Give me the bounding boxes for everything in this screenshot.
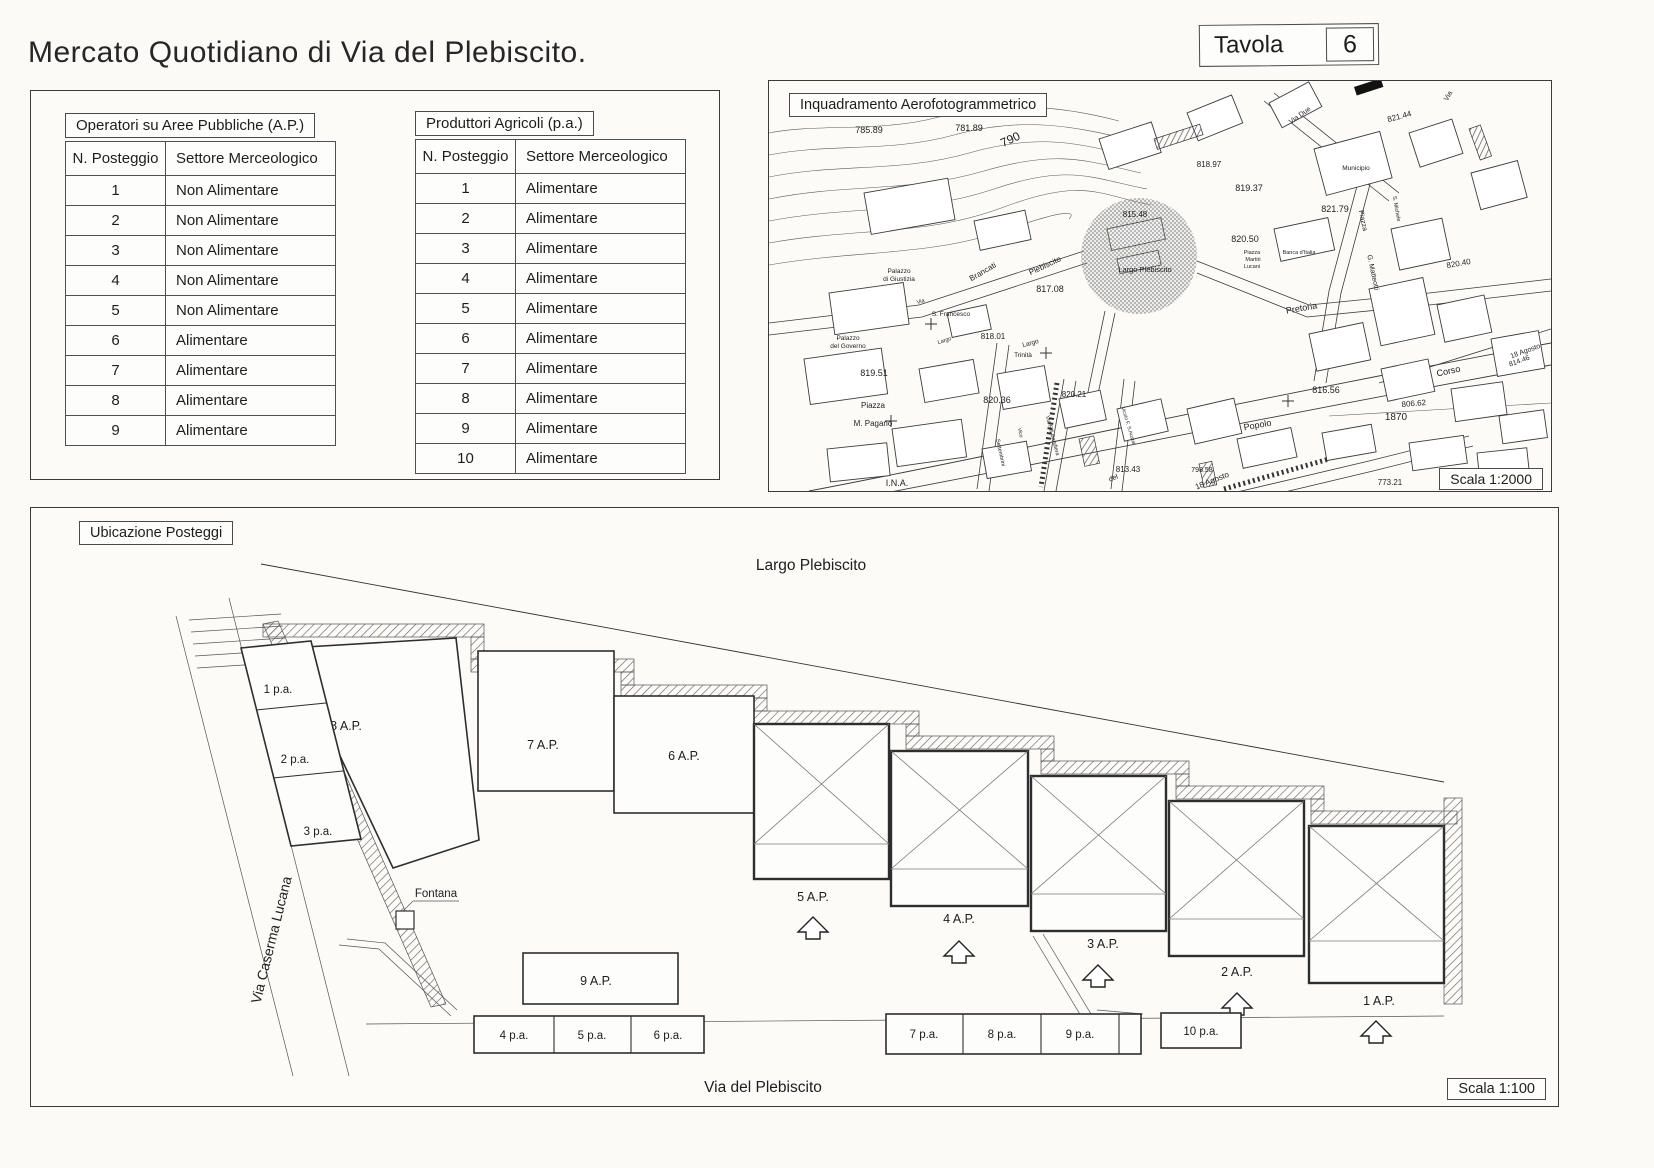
- stall-label: 2 p.a.: [281, 754, 310, 766]
- table-row: 7Alimentare: [66, 356, 336, 386]
- ap-col-settore: Settore Merceologico: [166, 142, 336, 176]
- map-label: 815.48: [1123, 210, 1148, 219]
- cell-settore: Alimentare: [516, 414, 686, 444]
- map-drawing: 785.89781.89790818.97819.37815.48820.50P…: [769, 81, 1551, 491]
- cell-posteggio: 9: [66, 416, 166, 446]
- map-label: Brancati: [968, 260, 998, 283]
- map-label: Via: [916, 298, 926, 306]
- map-label: Banca d'Italia: [1283, 250, 1317, 256]
- cell-settore: Alimentare: [516, 264, 686, 294]
- stall-label: 8 A.P.: [330, 719, 362, 733]
- table-row: 2Alimentare: [416, 204, 686, 234]
- map-label: 820.36: [983, 395, 1011, 405]
- map-label: Largo: [1022, 338, 1040, 349]
- map-scale-label: Scala 1:2000: [1439, 468, 1543, 490]
- map-label: 785.89: [855, 125, 883, 135]
- map-label: Pretoria: [1285, 300, 1318, 315]
- map-label: 820.21: [1062, 390, 1087, 399]
- street-label-largo-plebiscito: Largo Plebiscito: [756, 557, 866, 574]
- cell-posteggio: 1: [416, 174, 516, 204]
- map-label: S. Michele: [1391, 196, 1401, 222]
- ap-table-title: Operatori su Aree Pubbliche (A.P.): [65, 113, 315, 138]
- table-row: 6Alimentare: [66, 326, 336, 356]
- map-label: Lucani: [1244, 264, 1260, 270]
- stall-label: 9 A.P.: [580, 974, 612, 988]
- cell-posteggio: 3: [66, 236, 166, 266]
- map-label: Martiri: [1245, 257, 1260, 263]
- table-row: 8Alimentare: [66, 386, 336, 416]
- fountain: Fontana: [396, 888, 459, 929]
- stall-direction-arrow-icon: [1083, 965, 1113, 987]
- stall-direction-arrow-icon: [1222, 993, 1252, 1015]
- tavola-box: Tavola 6: [1199, 23, 1379, 67]
- table-row: 10Alimentare: [416, 444, 686, 474]
- map-label: del Governo: [830, 343, 866, 350]
- table-row: 3Non Alimentare: [66, 236, 336, 266]
- stall-2ap: [1169, 801, 1304, 956]
- ap-col-posteggio: N. Posteggio: [66, 142, 166, 176]
- table-row: 1Non Alimentare: [66, 176, 336, 206]
- map-label: Piazza: [861, 401, 886, 410]
- map-label: 781.89: [955, 123, 983, 133]
- map-label: 806.62: [1401, 398, 1427, 409]
- map-label: I.N.A.: [886, 478, 909, 488]
- cell-settore: Alimentare: [516, 294, 686, 324]
- pa-table-header-row: N. Posteggio Settore Merceologico: [416, 140, 686, 174]
- table-row: 4Non Alimentare: [66, 266, 336, 296]
- cell-settore: Non Alimentare: [166, 296, 336, 326]
- stall-label: 1 A.P.: [1363, 994, 1395, 1008]
- stall-label: 9 p.a.: [1066, 1029, 1095, 1041]
- map-label: Plebiscito: [1028, 254, 1063, 277]
- map-label: 818.01: [981, 332, 1006, 341]
- tavola-label: Tavola: [1200, 31, 1326, 60]
- map-label: Via: [1443, 90, 1454, 102]
- map-label: S. Francesco: [932, 311, 971, 318]
- map-label: Popolo: [1243, 418, 1272, 433]
- map-label: 817.08: [1036, 284, 1064, 294]
- tavola-number: 6: [1326, 27, 1374, 62]
- cell-posteggio: 7: [66, 356, 166, 386]
- pa-table-body: 1Alimentare2Alimentare3Alimentare4Alimen…: [416, 174, 686, 474]
- ap-table: N. Posteggio Settore Merceologico 1Non A…: [65, 141, 336, 446]
- cell-settore: Alimentare: [516, 444, 686, 474]
- cell-posteggio: 9: [416, 414, 516, 444]
- pa-col-settore: Settore Merceologico: [516, 140, 686, 174]
- plan-stalls-group: 8 A.P.7 A.P.6 A.P.9 A.P.5 A.P.4 A.P.3 A.…: [241, 638, 1444, 1054]
- stall-label: 5 p.a.: [578, 1030, 607, 1042]
- map-label: Trinità: [1014, 352, 1032, 359]
- cell-settore: Non Alimentare: [166, 266, 336, 296]
- map-label: Palazzo: [887, 268, 911, 275]
- pa-table: N. Posteggio Settore Merceologico 1Alime…: [415, 139, 686, 474]
- stall-label: 8 p.a.: [988, 1029, 1017, 1041]
- stall-label: 4 A.P.: [943, 912, 975, 926]
- plan-scale-label: Scala 1:100: [1447, 1078, 1546, 1100]
- pa-col-posteggio: N. Posteggio: [416, 140, 516, 174]
- map-label: 819.37: [1235, 183, 1263, 193]
- map-label: Piazza: [1244, 250, 1261, 256]
- cell-posteggio: 8: [416, 384, 516, 414]
- table-row: 6Alimentare: [416, 324, 686, 354]
- site-plan: Fontana 8 A.P.7 A.P.6 A.P.9 A.P.5 A.P.4 …: [30, 507, 1559, 1107]
- table-row: 1Alimentare: [416, 174, 686, 204]
- cell-posteggio: 3: [416, 234, 516, 264]
- map-inset: 785.89781.89790818.97819.37815.48820.50P…: [768, 80, 1552, 492]
- stall-label: 6 p.a.: [654, 1030, 683, 1042]
- table-row: 3Alimentare: [416, 234, 686, 264]
- cell-posteggio: 2: [416, 204, 516, 234]
- stall-label: 1 p.a.: [264, 684, 293, 696]
- cell-settore: Alimentare: [166, 416, 336, 446]
- cell-settore: Alimentare: [516, 384, 686, 414]
- plan-title-box: Ubicazione Posteggi: [79, 521, 233, 545]
- pa-table-title: Produttori Agricoli (p.a.): [415, 111, 594, 136]
- ap-table-header-row: N. Posteggio Settore Merceologico: [66, 142, 336, 176]
- cell-posteggio: 6: [66, 326, 166, 356]
- map-label: Palazzo: [836, 335, 860, 342]
- cell-settore: Alimentare: [166, 356, 336, 386]
- map-label: Vico: [1016, 427, 1024, 438]
- table-row: 5Non Alimentare: [66, 296, 336, 326]
- tables-panel: Operatori su Aree Pubbliche (A.P.) N. Po…: [30, 90, 720, 480]
- stall-label: 7 A.P.: [527, 738, 559, 752]
- cell-posteggio: 6: [416, 324, 516, 354]
- cell-settore: Alimentare: [516, 354, 686, 384]
- table-row: 9Alimentare: [66, 416, 336, 446]
- cell-settore: Alimentare: [166, 386, 336, 416]
- cell-settore: Alimentare: [516, 204, 686, 234]
- stall-direction-arrow-icon: [944, 941, 974, 963]
- stall-1ap: [1309, 826, 1444, 983]
- map-label: 1870: [1385, 412, 1408, 423]
- stall-4ap: [891, 751, 1028, 906]
- cell-settore: Non Alimentare: [166, 176, 336, 206]
- cell-posteggio: 1: [66, 176, 166, 206]
- table-row: 8Alimentare: [416, 384, 686, 414]
- map-label: 819.51: [860, 368, 888, 378]
- page-title: Mercato Quotidiano di Via del Plebiscito…: [28, 36, 587, 70]
- cell-settore: Non Alimentare: [166, 236, 336, 266]
- map-label: M. Pagano: [854, 419, 893, 428]
- map-label: 773.21: [1378, 478, 1403, 487]
- map-label: Largo Plebiscito: [1118, 265, 1171, 274]
- site-plan-drawing: Fontana 8 A.P.7 A.P.6 A.P.9 A.P.5 A.P.4 …: [31, 508, 1558, 1106]
- stall-label: 3 A.P.: [1087, 937, 1119, 951]
- map-label: 821.79: [1321, 204, 1349, 214]
- table-row: 5Alimentare: [416, 294, 686, 324]
- cell-posteggio: 5: [66, 296, 166, 326]
- cell-posteggio: 4: [66, 266, 166, 296]
- map-label: Municipio: [1342, 165, 1370, 172]
- cell-settore: Alimentare: [516, 234, 686, 264]
- table-row: 7Alimentare: [416, 354, 686, 384]
- cell-posteggio: 2: [66, 206, 166, 236]
- map-title: Inquadramento Aerofotogrammetrico: [789, 93, 1047, 117]
- map-label: Via F.lli Bandiera: [1044, 415, 1061, 457]
- stall-label: 4 p.a.: [500, 1030, 529, 1042]
- cell-posteggio: 5: [416, 294, 516, 324]
- map-label: G. Matteotti: [1365, 254, 1379, 291]
- stall-label: 5 A.P.: [797, 890, 829, 904]
- stall-5ap: [754, 724, 889, 879]
- stall-label: 7 p.a.: [910, 1029, 939, 1041]
- cell-posteggio: 10: [416, 444, 516, 474]
- street-label-via-caserma-lucana: Via Caserma Lucana: [248, 874, 295, 1005]
- map-label: 790: [998, 129, 1022, 150]
- stall-label: 3 p.a.: [304, 826, 333, 838]
- cell-settore: Alimentare: [516, 324, 686, 354]
- cell-posteggio: 8: [66, 386, 166, 416]
- map-label: 818.97: [1197, 160, 1222, 169]
- map-label: Corso: [1436, 364, 1462, 379]
- stall-direction-arrow-icon: [798, 917, 828, 939]
- cell-settore: Non Alimentare: [166, 206, 336, 236]
- map-label: 816.56: [1312, 385, 1340, 395]
- map-label: 813.43: [1116, 465, 1141, 474]
- table-row: 4Alimentare: [416, 264, 686, 294]
- cell-posteggio: 4: [416, 264, 516, 294]
- cell-settore: Alimentare: [516, 174, 686, 204]
- cell-settore: Alimentare: [166, 326, 336, 356]
- stall-7ap: [478, 651, 614, 791]
- map-label: 798.58: [1191, 467, 1213, 474]
- stall-label: 2 A.P.: [1221, 965, 1253, 979]
- ap-table-body: 1Non Alimentare2Non Alimentare3Non Alime…: [66, 176, 336, 446]
- street-label-via-del-plebiscito: Via del Plebiscito: [704, 1079, 822, 1096]
- cell-posteggio: 7: [416, 354, 516, 384]
- stall-direction-arrow-icon: [1361, 1021, 1391, 1043]
- table-row: 2Non Alimentare: [66, 206, 336, 236]
- fountain-label: Fontana: [415, 888, 458, 900]
- map-label: 820.50: [1231, 234, 1259, 244]
- stall-label: 6 A.P.: [668, 749, 700, 763]
- stall-label: 10 p.a.: [1183, 1026, 1218, 1038]
- map-label: di Giustizia: [883, 276, 915, 283]
- map-label: 821.44: [1386, 109, 1412, 124]
- stall-3ap: [1031, 776, 1166, 931]
- map-label: Largo: [937, 336, 952, 346]
- table-row: 9Alimentare: [416, 414, 686, 444]
- map-label: del: [1108, 474, 1120, 484]
